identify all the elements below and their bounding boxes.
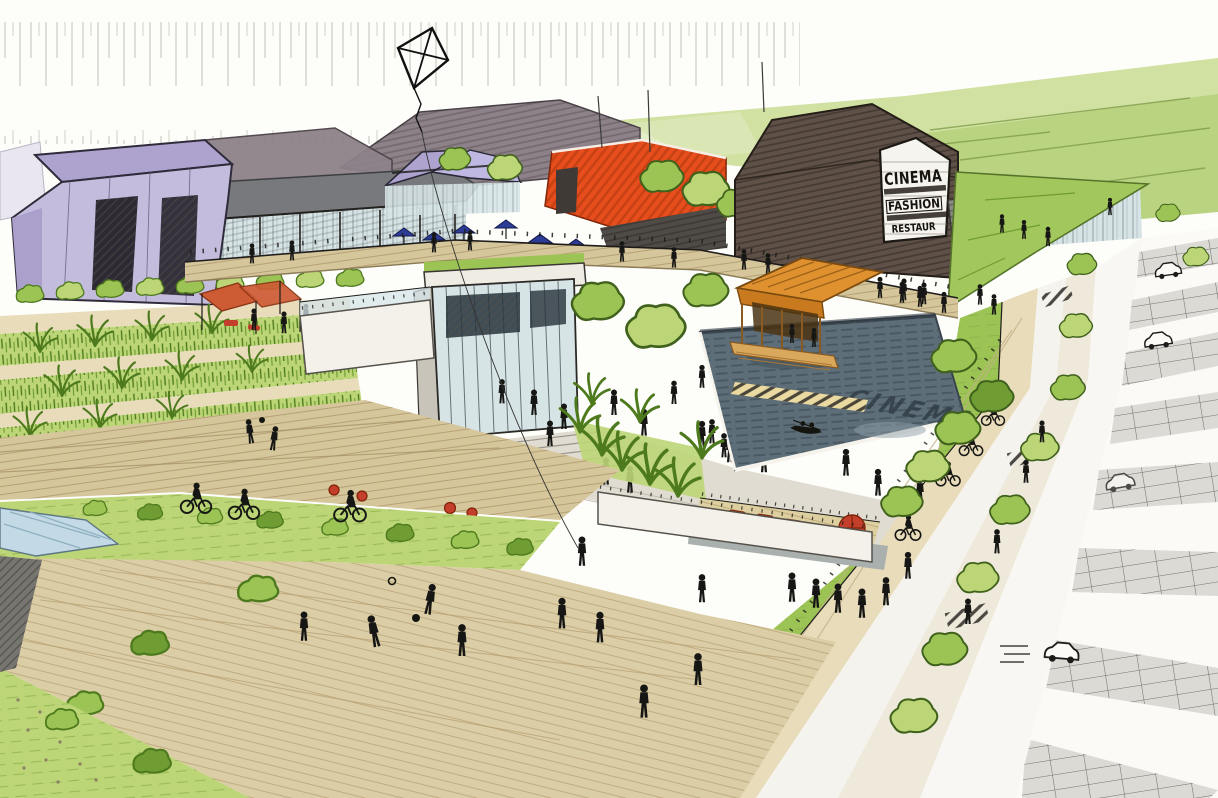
retaining-wall-upper xyxy=(300,287,434,374)
cinema-sign: CINEMA FASHION RESTAUR xyxy=(880,138,952,242)
cinema-sign-line-1: CINEMA xyxy=(884,166,943,189)
sketch-canvas: CINEMA FASHION RESTAUR xyxy=(0,0,1218,798)
masterplan-sketch: CINEMA FASHION RESTAUR xyxy=(0,0,1218,798)
glass-pavilion xyxy=(414,253,586,446)
